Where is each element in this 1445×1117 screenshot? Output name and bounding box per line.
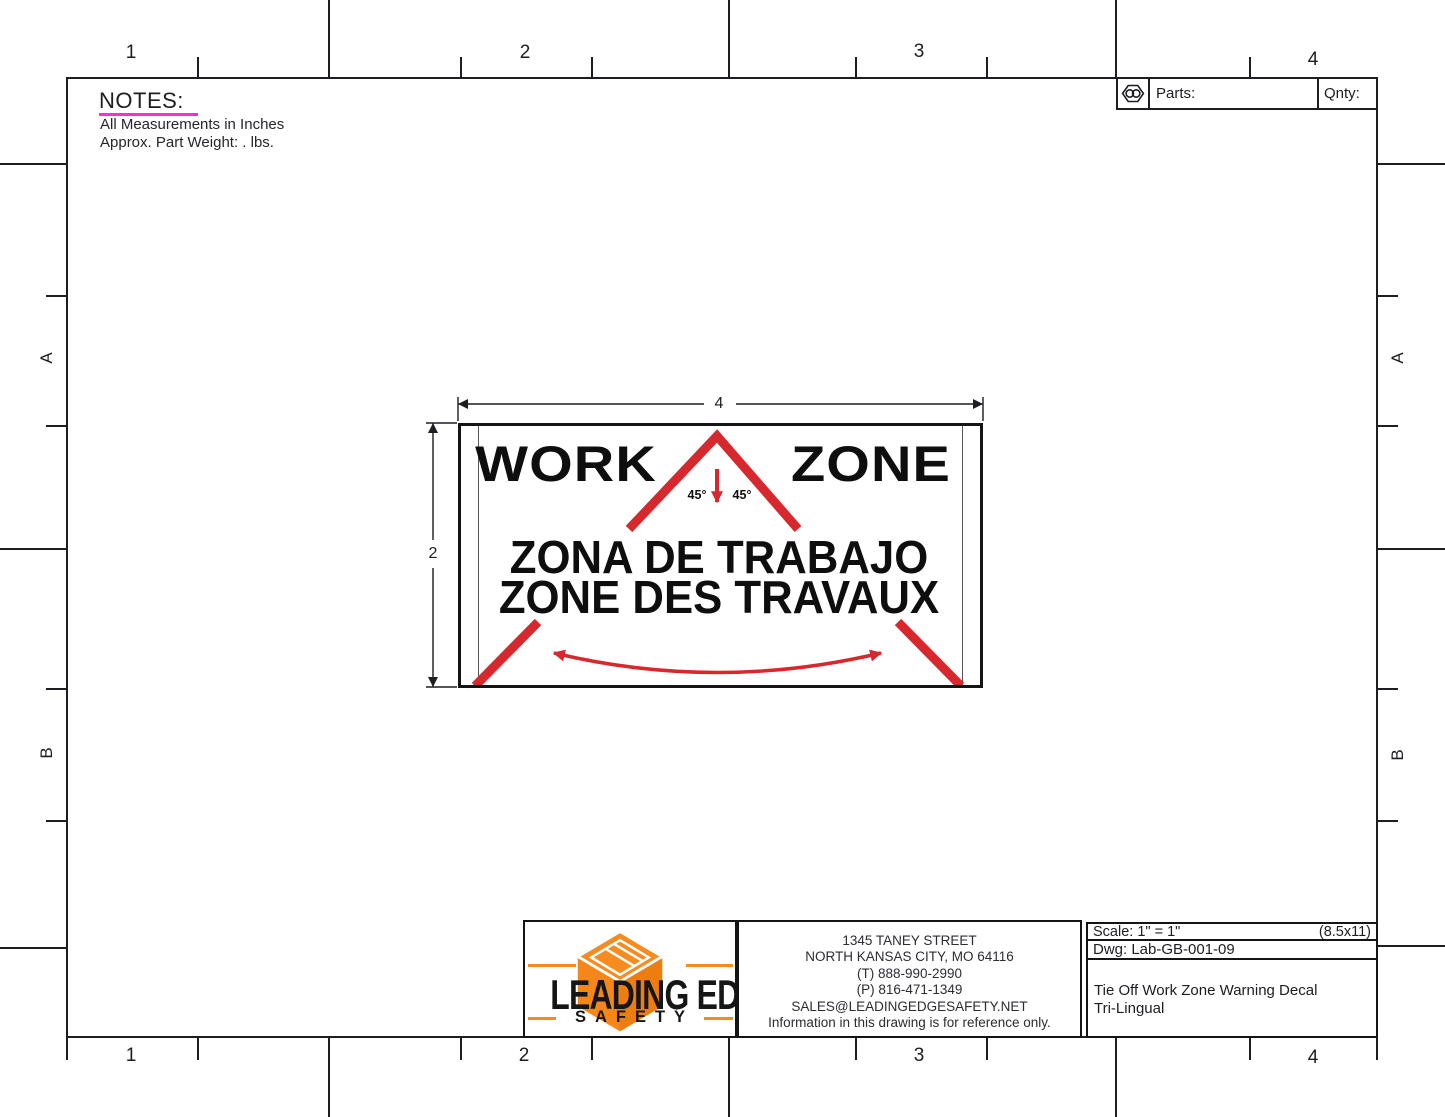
grid-tick	[460, 1038, 462, 1060]
grid-row-label-left: B	[37, 747, 57, 758]
grid-tick	[855, 57, 857, 77]
grid-tick	[1376, 1038, 1378, 1060]
grid-row-label-left: A	[37, 352, 57, 363]
grid-col-label-top: 4	[1308, 49, 1319, 71]
phone-line: (P) 816-471-1349	[739, 982, 1080, 998]
decal-word-right: ZONE	[791, 435, 951, 493]
scale-value: Scale: 1" = 1"	[1093, 924, 1180, 940]
grid-divider	[1115, 1038, 1117, 1117]
right-diagonal	[898, 622, 961, 685]
grid-divider	[0, 163, 66, 165]
qnty-label: Qnty:	[1317, 79, 1376, 108]
title-block-dwg-row: Dwg: Lab-GB-001-09	[1086, 939, 1378, 960]
decal-french-line: ZONE DES TRAVAUX	[499, 570, 939, 624]
grid-col-label-bottom: 3	[914, 1045, 925, 1067]
grid-divider	[1378, 163, 1445, 165]
grid-col-label-top: 2	[520, 42, 531, 64]
grid-tick	[1249, 57, 1251, 77]
grid-row-label-right: A	[1388, 352, 1408, 363]
grid-tick	[197, 1038, 199, 1060]
grid-divider	[728, 1038, 730, 1117]
grid-tick	[197, 57, 199, 77]
grid-col-label-top: 1	[126, 42, 137, 64]
left-diagonal	[475, 622, 538, 685]
logo-block: LEADING EDGE SAFETY	[523, 920, 737, 1038]
logo-rule	[528, 964, 576, 967]
width-dimension-label: 4	[712, 395, 727, 413]
grid-divider	[728, 0, 730, 77]
grid-tick	[46, 295, 66, 297]
email-line: SALES@LEADINGEDGESAFETY.NET	[739, 999, 1080, 1015]
hex-nut-icon	[1118, 79, 1150, 108]
grid-tick	[1378, 688, 1398, 690]
drawing-title-line: Tri-Lingual	[1094, 1000, 1376, 1018]
grid-tick	[46, 820, 66, 822]
parts-label: Parts:	[1150, 79, 1317, 108]
angle-label-right: 45°	[733, 488, 752, 502]
company-address-block: 1345 TANEY STREET NORTH KANSAS CITY, MO …	[737, 920, 1082, 1038]
grid-col-label-bottom: 2	[519, 1045, 530, 1067]
grid-divider	[328, 1038, 330, 1117]
grid-divider	[1378, 548, 1445, 550]
drawing-sheet: 1 2 3 4 1 2 3 4 A B A B NOTES: All Measu…	[0, 0, 1445, 1117]
phone-line: (T) 888-990-2990	[739, 966, 1080, 982]
disclaimer-line: Information in this drawing is for refer…	[739, 1015, 1080, 1031]
work-zone-decal: WORK ZONE 45° 45° ZONA DE TRABAJO ZONE D…	[458, 423, 983, 688]
notes-heading: NOTES:	[99, 88, 184, 114]
parts-qnty-block: Parts: Qnty:	[1116, 77, 1378, 110]
grid-tick	[1378, 295, 1398, 297]
logo-rule	[528, 1017, 556, 1020]
grid-tick	[591, 57, 593, 77]
grid-tick	[591, 1038, 593, 1060]
grid-col-label-top: 3	[914, 41, 925, 63]
grid-tick	[1249, 1038, 1251, 1060]
grid-divider	[328, 0, 330, 77]
angle-label-left: 45°	[688, 488, 707, 502]
grid-row-label-right: B	[1388, 749, 1408, 760]
grid-divider	[0, 548, 66, 550]
grid-tick	[986, 1038, 988, 1060]
grid-tick	[1378, 820, 1398, 822]
dwg-number: Dwg: Lab-GB-001-09	[1093, 941, 1235, 958]
address-line: 1345 TANEY STREET	[739, 933, 1080, 949]
drawing-title-line: Tie Off Work Zone Warning Decal	[1094, 982, 1376, 1000]
swing-curve-arrow	[554, 653, 881, 673]
grid-tick	[46, 688, 66, 690]
height-dimension-label: 2	[426, 545, 441, 563]
notes-line: Approx. Part Weight: . lbs.	[100, 134, 274, 151]
title-block-description: Tie Off Work Zone Warning Decal Tri-Ling…	[1086, 958, 1378, 1038]
logo-rule	[686, 964, 733, 967]
decal-word-left: WORK	[475, 435, 657, 493]
grid-divider	[1115, 0, 1117, 77]
grid-divider	[1378, 945, 1445, 947]
address-line: NORTH KANSAS CITY, MO 64116	[739, 949, 1080, 965]
grid-tick	[46, 425, 66, 427]
grid-divider	[0, 947, 66, 949]
notes-line: All Measurements in Inches	[100, 116, 284, 133]
sheet-size-value: (8.5x11)	[1319, 924, 1371, 940]
grid-tick	[460, 57, 462, 77]
grid-tick	[66, 1038, 68, 1060]
grid-col-label-bottom: 4	[1308, 1047, 1319, 1069]
grid-tick	[986, 57, 988, 77]
logo-rule	[704, 1017, 733, 1020]
grid-col-label-bottom: 1	[126, 1045, 137, 1067]
grid-tick	[855, 1038, 857, 1060]
grid-tick	[1378, 425, 1398, 427]
